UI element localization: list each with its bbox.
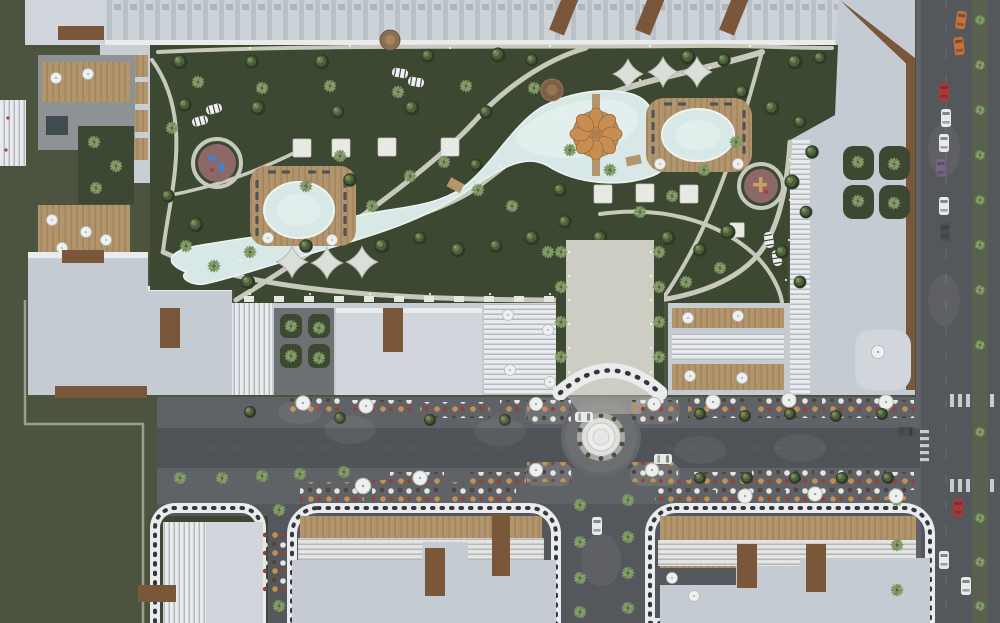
grass-field-bottom (0, 397, 157, 623)
screenshot-root: Aerial dusk render of a residential comp… (0, 0, 1000, 623)
aerial-render: Aerial dusk render of a residential comp… (0, 0, 1000, 623)
block-west (138, 508, 268, 623)
palm-median (972, 0, 988, 623)
promenade: Central entrance promenade Perforated en… (555, 240, 666, 414)
south-wing-east (668, 303, 790, 395)
block-center (292, 508, 556, 623)
oval-pool-west: West oval pool on timber deck (250, 166, 356, 246)
playground-west: West playground (198, 144, 236, 182)
bottom-blocks: South residential blocks (138, 494, 930, 623)
courtyard: Landscaped courtyard park Freeform lagoo… (150, 30, 838, 303)
playground-east: East playground (744, 169, 778, 203)
block-east (650, 508, 930, 623)
south-wing-west (232, 303, 562, 395)
oval-pool-east: East oval pool on timber deck (646, 98, 752, 172)
